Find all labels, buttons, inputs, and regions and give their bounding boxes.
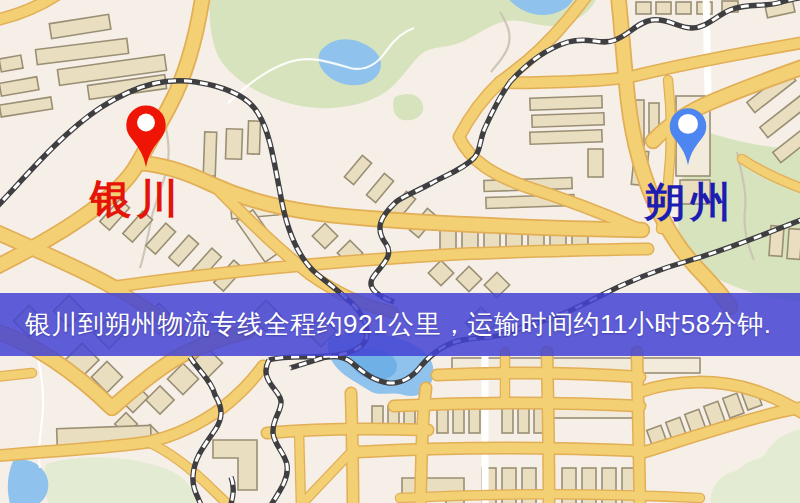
map-screenshot: 银川 朔州 银川到朔州物流专线全程约921公里，运输时间约11小时58分钟. — [0, 0, 800, 503]
destination-pin-icon[interactable] — [663, 104, 713, 167]
route-info-banner: 银川到朔州物流专线全程约921公里，运输时间约11小时58分钟. — [0, 293, 800, 356]
route-info-text: 银川到朔州物流专线全程约921公里，运输时间约11小时58分钟. — [0, 307, 772, 342]
origin-pin-icon[interactable] — [119, 101, 173, 169]
map-canvas[interactable] — [0, 0, 800, 503]
origin-city-label: 银川 — [90, 179, 184, 220]
destination-city-label: 朔州 — [644, 182, 736, 223]
